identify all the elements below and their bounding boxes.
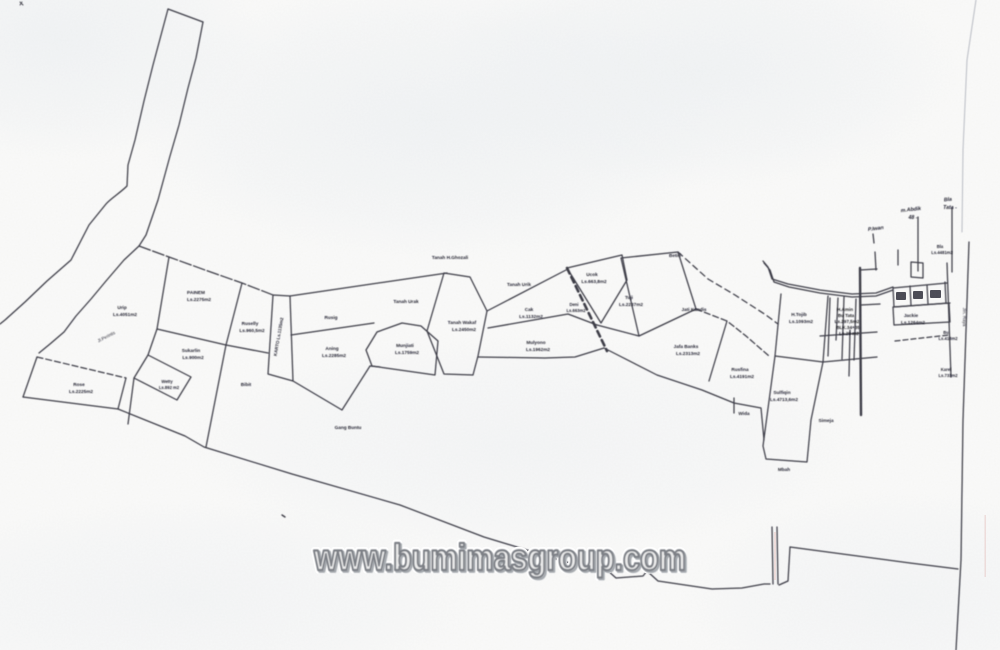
svg-text:www.bumimasgroup.com: www.bumimasgroup.com	[313, 537, 686, 578]
